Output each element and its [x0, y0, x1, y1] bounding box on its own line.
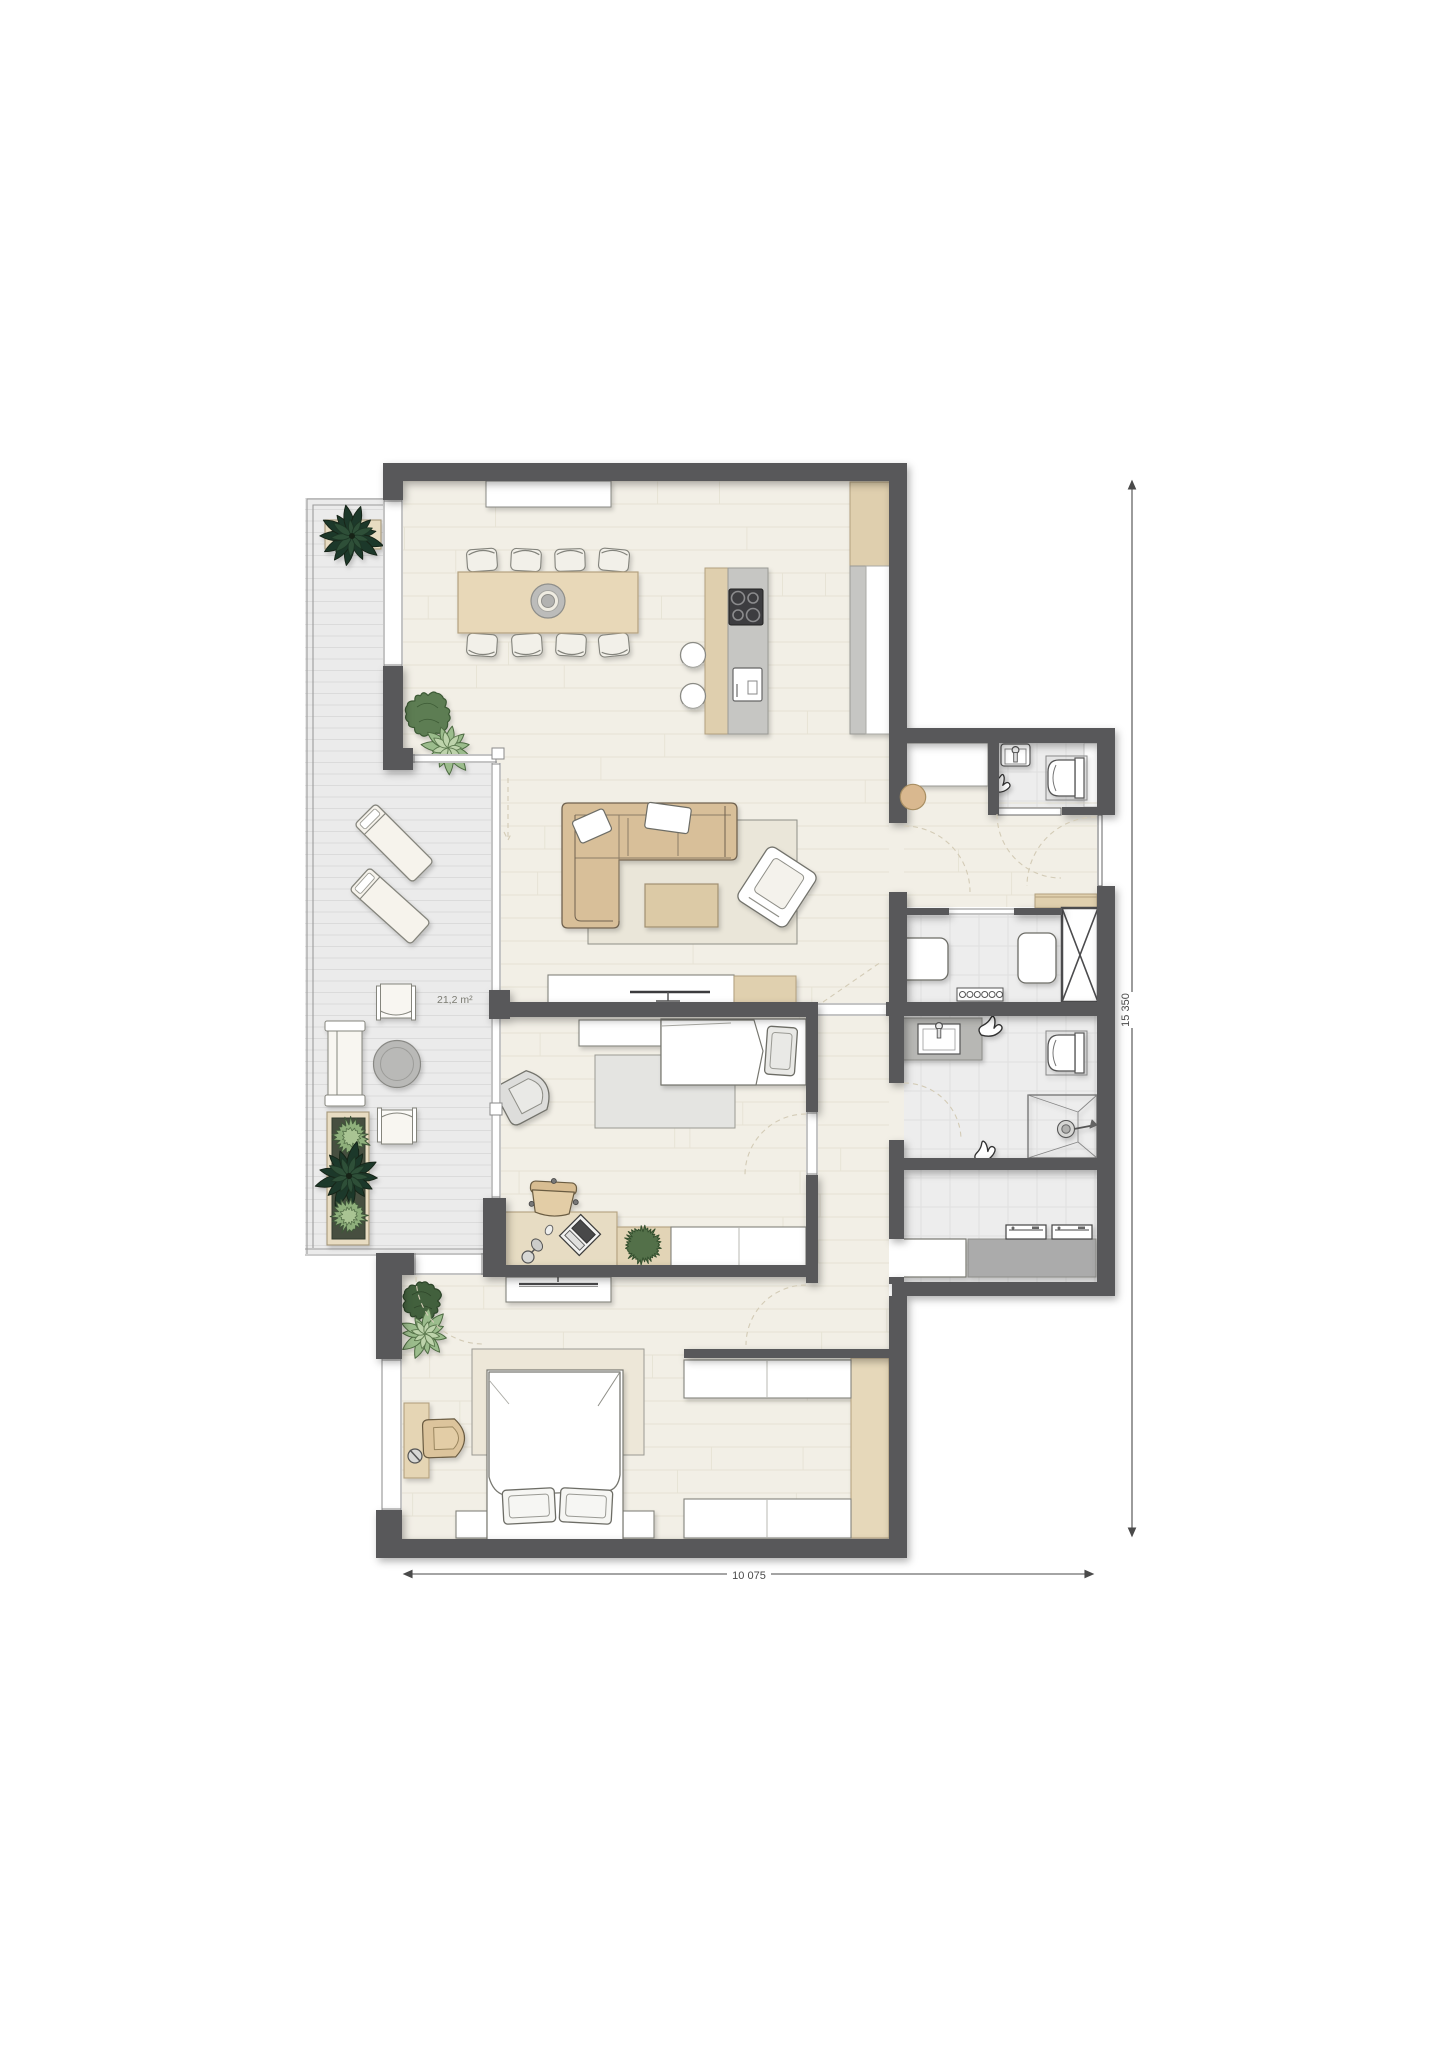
svg-text:21,2 m²: 21,2 m² [437, 994, 473, 1006]
svg-text:15 350: 15 350 [1120, 993, 1132, 1027]
svg-text:10 075: 10 075 [732, 1570, 766, 1582]
